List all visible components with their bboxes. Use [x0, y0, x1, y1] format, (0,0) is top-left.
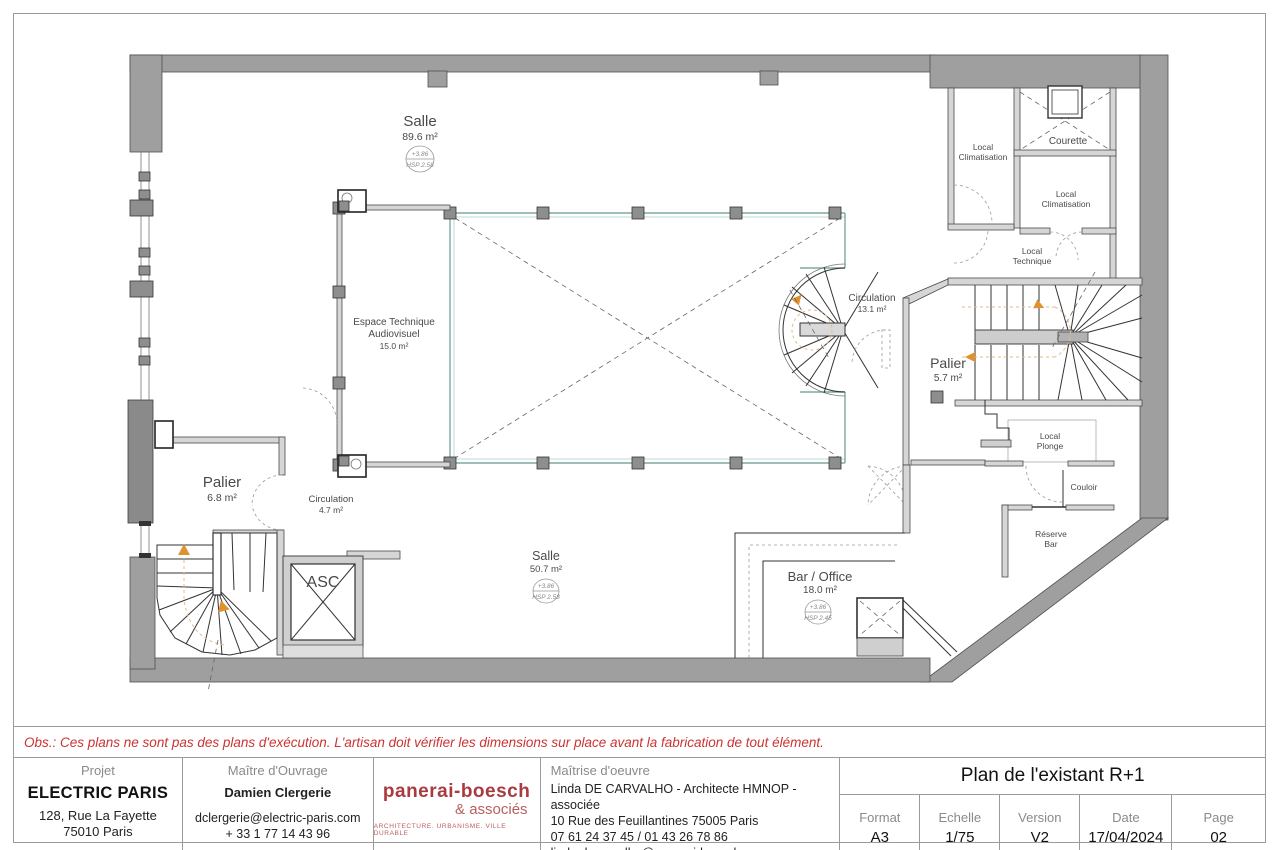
meta-version-label: Version: [1018, 810, 1061, 825]
floor-plan-svg: ASC: [0, 0, 1280, 726]
svg-text:HSP 2.45: HSP 2.45: [804, 615, 832, 622]
sheet-frame: ASC: [13, 13, 1266, 843]
svg-text:Salle: Salle: [403, 113, 436, 130]
meta-page-value: 02: [1210, 829, 1227, 846]
meta-date-value: 17/04/2024: [1088, 829, 1163, 846]
svg-text:Climatisation: Climatisation: [1042, 199, 1091, 209]
mo-contact: dclergerie@electric-paris.com + 33 1 77 …: [195, 810, 361, 843]
meta-format-value: A3: [871, 829, 889, 846]
svg-text:89.6 m²: 89.6 m²: [402, 131, 438, 143]
moe-email: linda.decarvalho@panerai-boesch.com: [551, 845, 840, 850]
room-reserve-bar: Réserve Bar: [1035, 529, 1067, 549]
svg-text:Bar / Office: Bar / Office: [788, 569, 853, 584]
central-void-railing: [444, 207, 845, 469]
svg-text:Palier: Palier: [930, 355, 966, 371]
room-salle1: Salle 89.6 m² +3.86 HSP 2.58: [402, 113, 438, 172]
svg-text:+3.86: +3.86: [538, 583, 555, 590]
mo-name: Damien Clergerie: [224, 785, 331, 800]
svg-text:HSP 2.58: HSP 2.58: [532, 594, 560, 601]
wall-fixture-top: [338, 190, 366, 212]
room-palier2: Palier 6.8 m²: [203, 474, 241, 504]
room-local-technique: Local Technique: [1013, 246, 1052, 266]
svg-text:Circulation: Circulation: [848, 293, 895, 304]
moe-details: Linda DE CARVALHO - Architecte HMNOP - a…: [551, 781, 840, 850]
svg-text:Local: Local: [973, 142, 993, 152]
meta-echelle-label: Echelle: [939, 810, 982, 825]
logo-line1: panerai-boesch: [383, 782, 530, 801]
note-row: Obs.: Ces plans ne sont pas des plans d'…: [14, 726, 1265, 757]
right-rooms-walls: [903, 86, 1142, 465]
title-cell-drawing-info: Plan de l'existant R+1 Format A3 Echelle…: [840, 758, 1265, 850]
drawing-meta-row: Format A3 Echelle 1/75 Version V2 Date 1…: [840, 795, 1265, 850]
architect-logo: panerai-boesch & associés ARCHITECTURE. …: [374, 782, 540, 837]
bar-office-fittings: [735, 533, 957, 658]
moe-address: 10 Rue des Feuillantines 75005 Paris: [551, 813, 840, 829]
room-bar-office: Bar / Office 18.0 m² +3.86 HSP 2.45: [788, 569, 853, 624]
svg-text:15.0 m²: 15.0 m²: [380, 341, 409, 351]
mo-phone: + 33 1 77 14 43 96: [195, 826, 361, 842]
svg-text:Climatisation: Climatisation: [959, 152, 1008, 162]
drawing-title: Plan de l'existant R+1: [840, 758, 1265, 795]
svg-text:Circulation: Circulation: [309, 494, 354, 505]
main-staircase: [962, 272, 1142, 400]
title-cell-maitrise-doeuvre: Maîtrise d'oeuvre Linda DE CARVALHO - Ar…: [541, 758, 841, 850]
svg-text:Espace Technique: Espace Technique: [353, 317, 435, 328]
meta-echelle-value: 1/75: [945, 829, 974, 846]
svg-text:Technique: Technique: [1013, 256, 1052, 266]
logo-line2: & associés: [455, 801, 528, 819]
svg-text:+3.86: +3.86: [810, 604, 827, 611]
logo-tagline: ARCHITECTURE. URBANISME. VILLE DURABLE: [374, 823, 540, 837]
svg-text:Plonge: Plonge: [1037, 441, 1064, 451]
room-local-plonge: Local Plonge: [1037, 431, 1064, 451]
projet-label: Projet: [81, 763, 115, 778]
room-couloir: Couloir: [1071, 482, 1098, 492]
moe-phones: 07 61 24 37 45 / 01 43 26 78 86: [551, 829, 840, 845]
meta-format-label: Format: [859, 810, 900, 825]
room-local-clim-2: Local Climatisation: [1042, 189, 1091, 209]
room-circulation2: Circulation 4.7 m²: [309, 494, 354, 515]
title-block: Projet ELECTRIC PARIS 128, Rue La Fayett…: [14, 757, 1265, 850]
svg-text:4.7 m²: 4.7 m²: [319, 505, 343, 515]
svg-text:Courette: Courette: [1049, 136, 1088, 147]
svg-text:50.7 m²: 50.7 m²: [530, 564, 562, 575]
svg-text:Local: Local: [1022, 246, 1042, 256]
room-salle2: Salle 50.7 m² +3.86 HSP 2.58: [530, 549, 562, 603]
moe-label: Maîtrise d'oeuvre: [551, 763, 650, 778]
svg-text:Réserve: Réserve: [1035, 529, 1067, 539]
svg-text:Palier: Palier: [203, 474, 241, 491]
svg-text:Local: Local: [1056, 189, 1076, 199]
room-local-clim-1: Local Climatisation: [959, 142, 1008, 162]
project-address: 128, Rue La Fayette 75010 Paris: [39, 808, 157, 841]
svg-text:5.7 m²: 5.7 m²: [934, 373, 963, 384]
svg-text:Salle: Salle: [532, 549, 560, 563]
svg-text:Couloir: Couloir: [1071, 482, 1098, 492]
svg-text:HSP 2.58: HSP 2.58: [406, 162, 434, 169]
meta-format: Format A3: [840, 795, 920, 850]
meta-version: Version V2: [1000, 795, 1080, 850]
meta-date-label: Date: [1112, 810, 1139, 825]
svg-text:18.0 m²: 18.0 m²: [803, 585, 838, 596]
svg-text:13.1 m²: 13.1 m²: [858, 304, 887, 314]
meta-echelle: Echelle 1/75: [920, 795, 1000, 850]
title-cell-maitre-douvrage: Maître d'Ouvrage Damien Clergerie dclerg…: [183, 758, 374, 850]
room-espace-technique: Espace Technique Audiovisuel 15.0 m²: [353, 317, 435, 351]
svg-text:Local: Local: [1040, 431, 1060, 441]
warning-note: Obs.: Ces plans ne sont pas des plans d'…: [24, 735, 824, 750]
floor-plan-sheet: ASC: [0, 0, 1280, 850]
wall-fixture-bottom: [338, 455, 366, 477]
meta-page-label: Page: [1203, 810, 1233, 825]
moe-architect: Linda DE CARVALHO - Architecte HMNOP - a…: [551, 781, 840, 813]
title-cell-projet: Projet ELECTRIC PARIS 128, Rue La Fayett…: [14, 758, 183, 850]
svg-text:Audiovisuel: Audiovisuel: [368, 329, 419, 340]
project-address-line2: 75010 Paris: [39, 824, 157, 840]
spiral-staircase: [779, 264, 878, 396]
dumbwaiter: [857, 598, 957, 656]
title-cell-logo: panerai-boesch & associés ARCHITECTURE. …: [374, 758, 541, 850]
mo-label: Maître d'Ouvrage: [228, 763, 328, 778]
meta-page: Page 02: [1172, 795, 1265, 850]
meta-date: Date 17/04/2024: [1080, 795, 1172, 850]
room-label-asc: ASC: [307, 574, 340, 591]
room-circulation1: Circulation 13.1 m²: [848, 293, 895, 314]
room-palier1: Palier 5.7 m²: [930, 355, 966, 384]
elevator-asc: ASC: [283, 556, 363, 658]
plan-drawing-area: ASC: [14, 14, 1265, 726]
svg-text:Bar: Bar: [1044, 539, 1057, 549]
svg-text:+3.86: +3.86: [412, 151, 429, 158]
meta-version-value: V2: [1031, 829, 1049, 846]
mo-email: dclergerie@electric-paris.com: [195, 810, 361, 826]
svg-text:6.8 m²: 6.8 m²: [207, 492, 237, 504]
room-courette: Courette: [1049, 136, 1088, 147]
project-address-line1: 128, Rue La Fayette: [39, 808, 157, 824]
project-name: ELECTRIC PARIS: [28, 784, 169, 803]
